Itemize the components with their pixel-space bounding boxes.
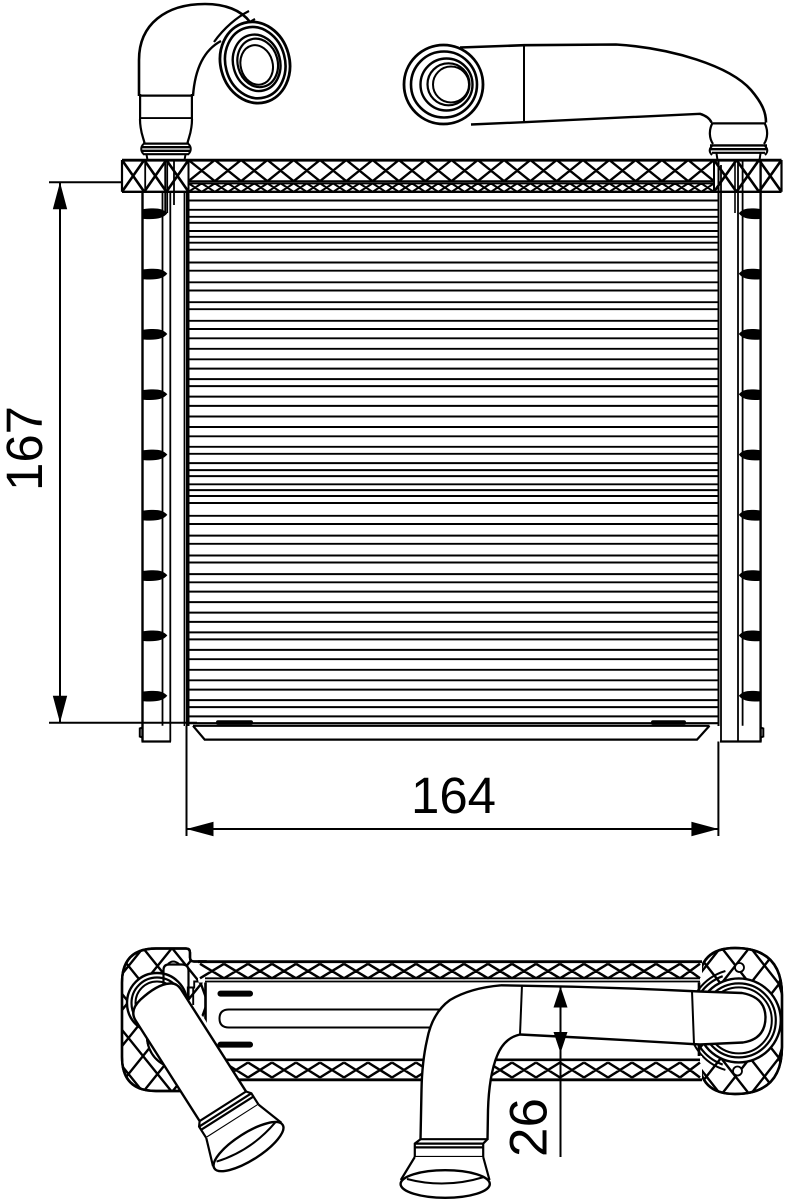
svg-text:164: 164: [411, 767, 496, 824]
svg-text:26: 26: [500, 1098, 559, 1157]
svg-text:167: 167: [0, 406, 53, 491]
